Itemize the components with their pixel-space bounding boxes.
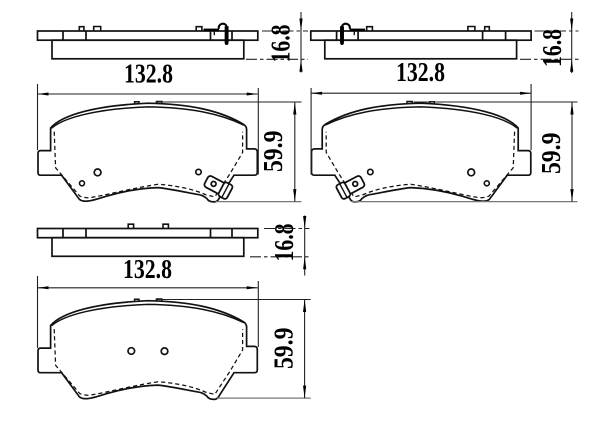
svg-text:16.8: 16.8: [269, 224, 299, 262]
svg-text:132.8: 132.8: [124, 59, 173, 89]
svg-text:59.9: 59.9: [258, 131, 288, 173]
svg-text:132.8: 132.8: [123, 254, 172, 284]
svg-text:59.9: 59.9: [536, 133, 566, 175]
svg-text:132.8: 132.8: [396, 57, 445, 87]
svg-text:16.8: 16.8: [537, 29, 567, 67]
svg-text:59.9: 59.9: [269, 328, 299, 370]
svg-text:16.8: 16.8: [265, 25, 295, 63]
